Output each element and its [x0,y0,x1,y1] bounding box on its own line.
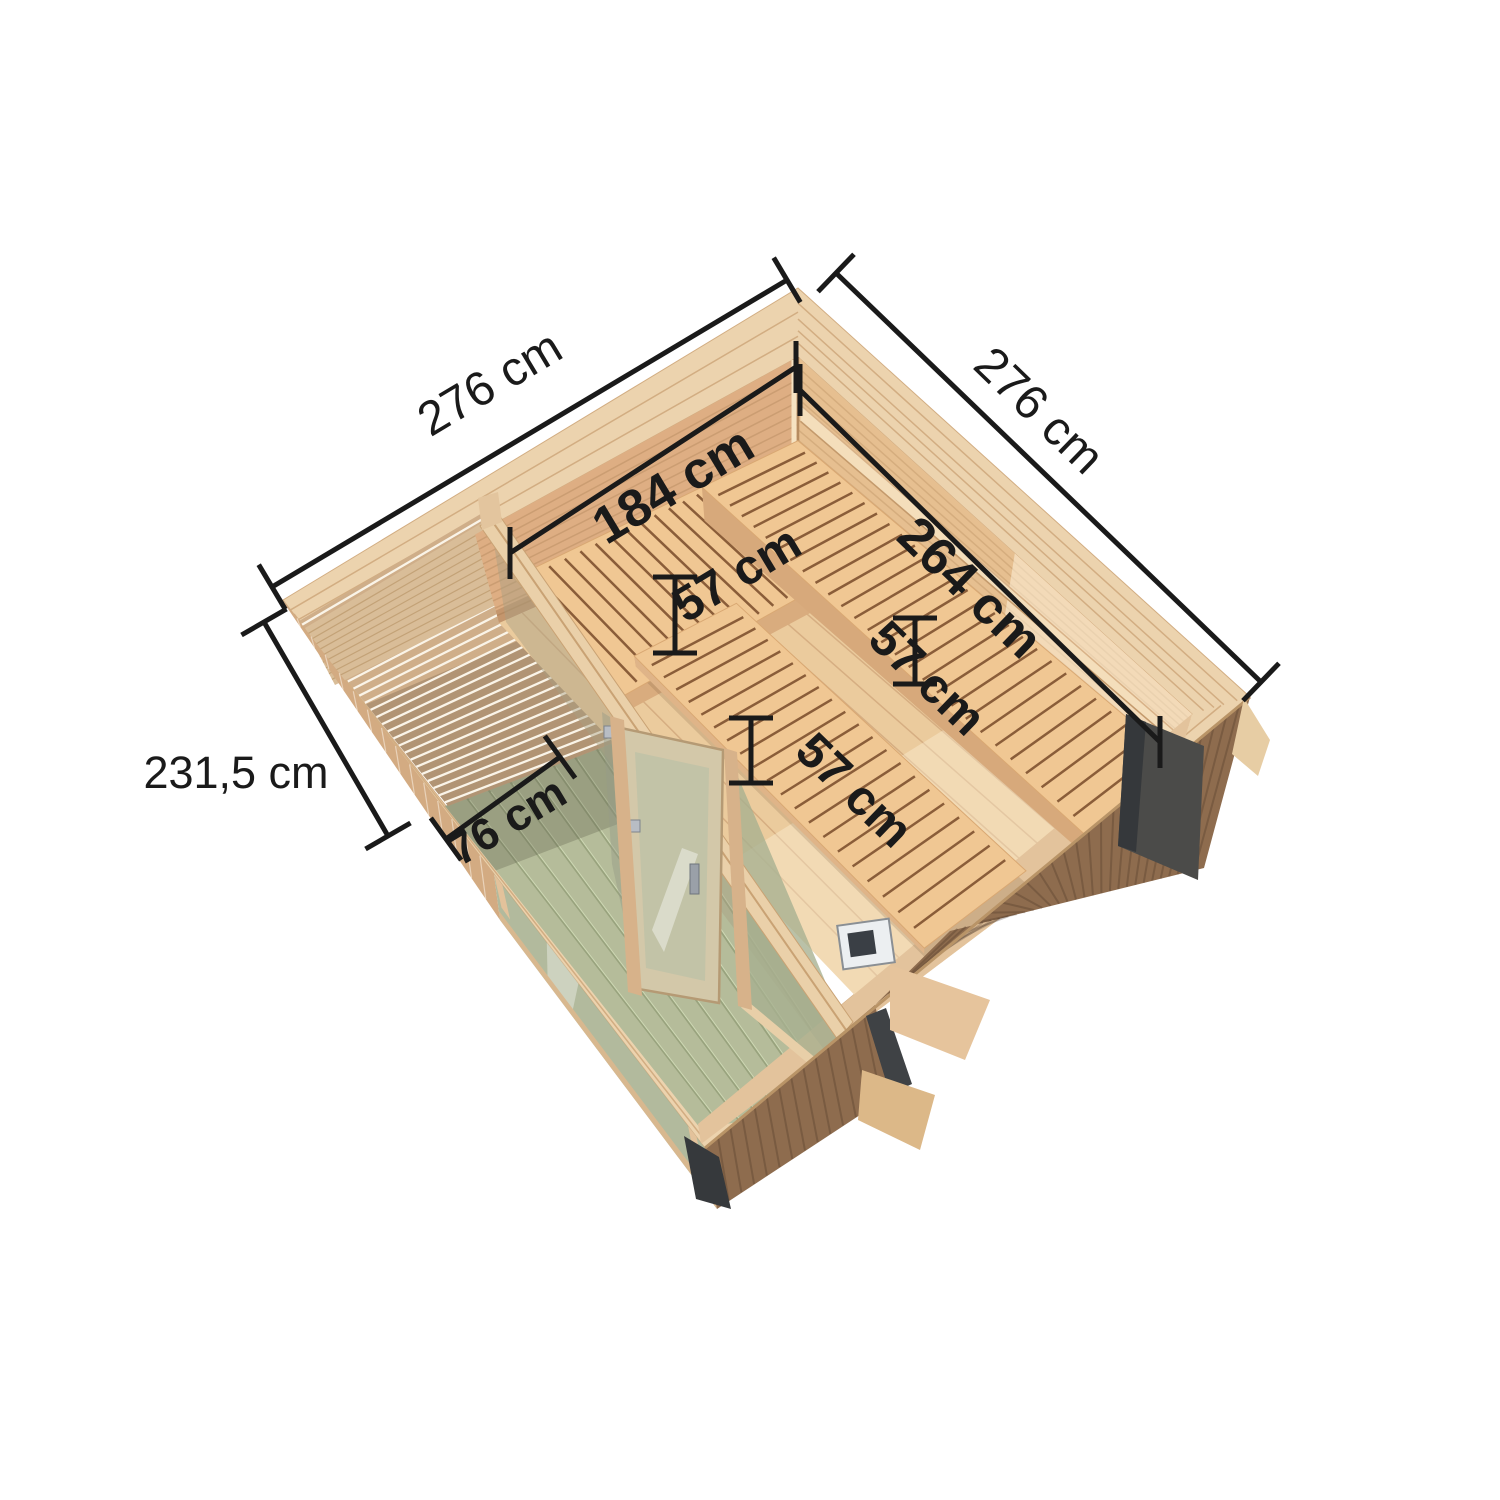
svg-text:231,5 cm: 231,5 cm [143,747,328,798]
